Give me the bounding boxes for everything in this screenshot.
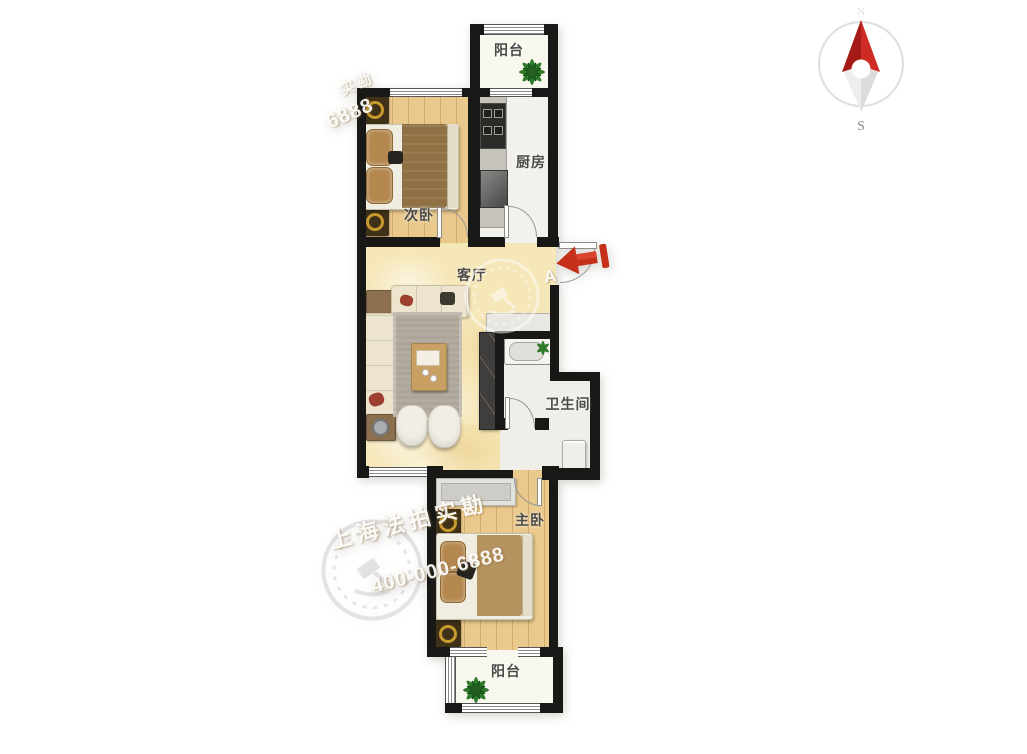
window	[390, 88, 462, 97]
room-label-balcony-top: 阳台	[494, 43, 524, 57]
compass-south-label: S	[857, 119, 865, 134]
burner	[494, 109, 503, 118]
room-label-bedroom-master: 主卧	[515, 513, 545, 527]
wall-segment	[535, 418, 549, 430]
wall-segment	[445, 703, 462, 713]
wall-segment	[549, 470, 558, 657]
wall-segment	[427, 647, 450, 657]
blanket	[402, 124, 447, 208]
window	[450, 647, 487, 657]
nightstand	[434, 620, 461, 647]
compass-north-label: N	[857, 6, 865, 18]
burner	[483, 109, 492, 118]
stamp-watermark	[462, 256, 542, 336]
room-label-bathroom: 卫生间	[546, 397, 591, 411]
wall-segment	[468, 97, 480, 237]
wall-segment	[462, 88, 490, 97]
window	[518, 647, 540, 657]
door-leaf	[505, 397, 510, 429]
wall-segment	[540, 703, 563, 713]
wall-segment	[357, 88, 366, 478]
wall-segment	[548, 97, 558, 247]
room-label-kitchen: 厨房	[516, 155, 546, 169]
cup	[422, 369, 429, 376]
blanket-fold	[522, 535, 532, 616]
burner	[483, 126, 492, 135]
window	[484, 24, 544, 35]
wall-segment	[532, 88, 558, 97]
wall-segment	[590, 372, 600, 480]
door-leaf	[504, 205, 509, 238]
window	[369, 467, 428, 477]
pillow	[366, 167, 393, 204]
door-leaf	[437, 207, 442, 238]
cup	[430, 375, 437, 382]
wall-segment	[470, 24, 480, 97]
window	[445, 657, 456, 703]
entrance-arrow-icon	[551, 235, 618, 282]
burner	[494, 126, 503, 135]
table-tray	[416, 350, 440, 366]
speaker-disc	[372, 419, 389, 436]
wall-segment	[548, 24, 558, 97]
armchair	[428, 405, 461, 448]
room-label-bedroom-second: 次卧	[404, 208, 434, 222]
side-table	[366, 414, 396, 441]
compass: N S	[813, 2, 909, 134]
wall-segment	[468, 237, 505, 247]
room-label-balcony-bottom: 阳台	[491, 664, 521, 678]
clothes-item	[388, 151, 403, 164]
wall-segment	[357, 466, 369, 478]
wall-segment	[436, 470, 513, 478]
armchair	[396, 405, 428, 446]
water-heater	[562, 440, 586, 470]
window	[490, 88, 532, 97]
window	[462, 703, 540, 713]
potted-plant	[514, 54, 550, 90]
kitchen-appliance	[480, 170, 508, 208]
wall-segment	[357, 237, 440, 247]
blanket-fold	[447, 124, 458, 208]
wall-segment	[495, 331, 504, 430]
sofa-cushion	[440, 292, 455, 305]
door-leaf	[537, 478, 542, 506]
